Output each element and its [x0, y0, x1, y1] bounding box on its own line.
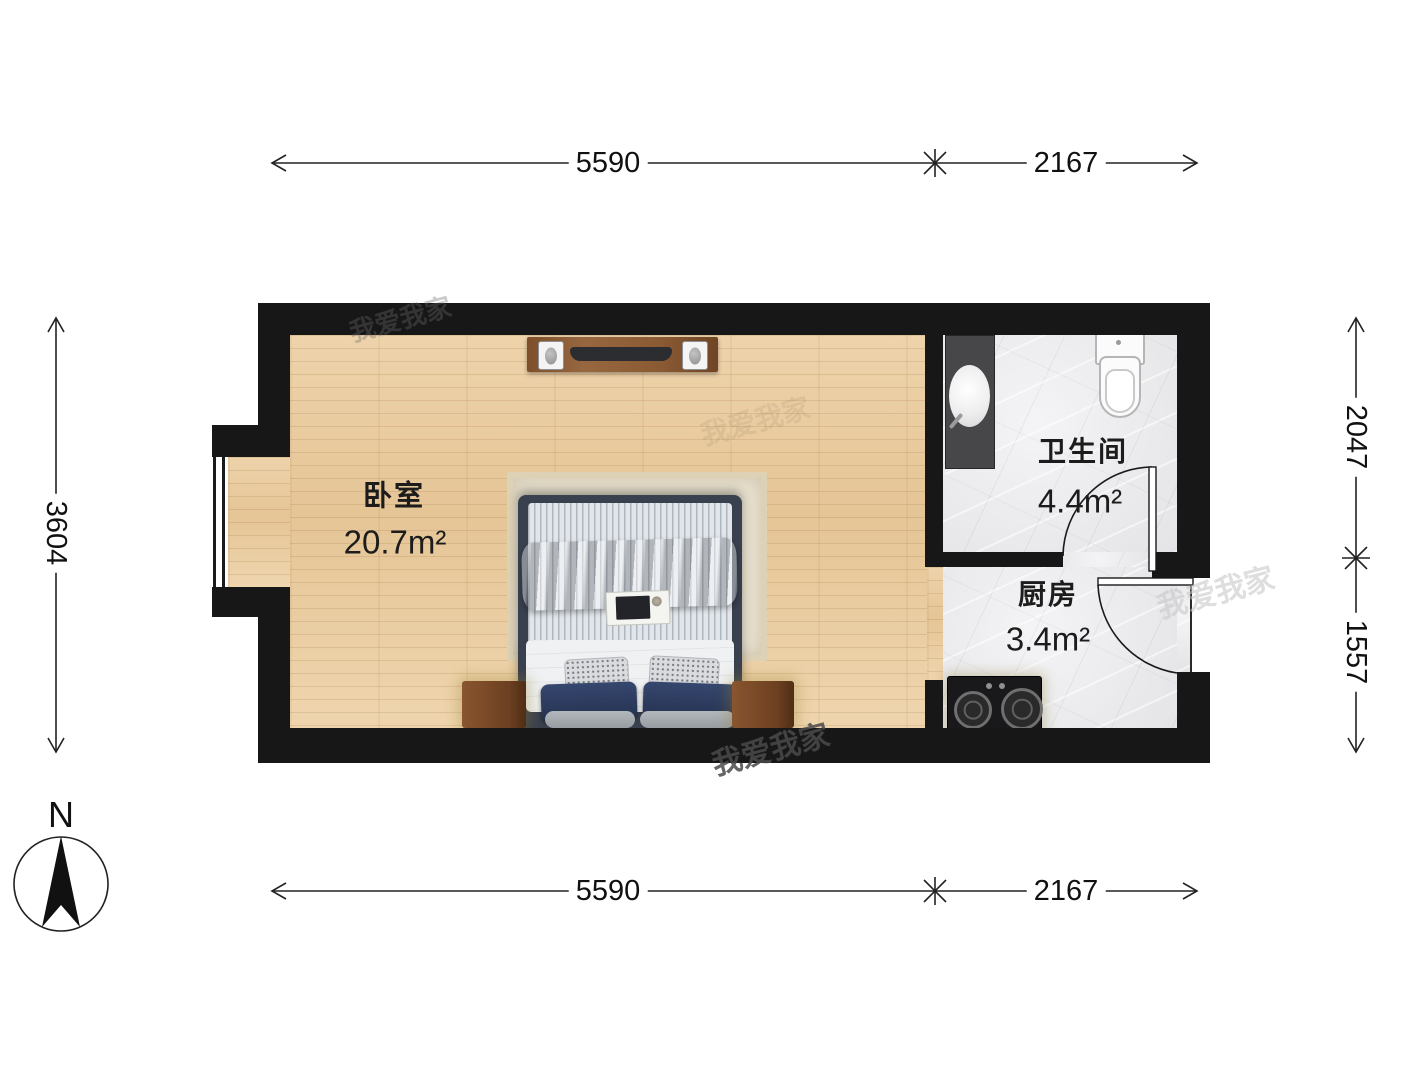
- bed: [518, 495, 742, 731]
- passage-floor: [927, 567, 943, 680]
- wall-top: [258, 303, 1210, 335]
- wall-right-lower: [1177, 672, 1210, 763]
- nightstand-left: [462, 681, 526, 728]
- window-glass-line-inner: [222, 457, 225, 587]
- vanity-cabinet: [945, 335, 995, 469]
- tv-console: [527, 337, 718, 372]
- dim-left-3604: 3604: [41, 494, 71, 573]
- cup-icon: [652, 596, 662, 606]
- stove: [947, 676, 1042, 733]
- window-glass-line-outer: [213, 457, 216, 587]
- wall-left-upper: [258, 303, 290, 425]
- wall-right-upper: [1177, 303, 1210, 578]
- dim-right-2047: 2047: [1341, 398, 1371, 477]
- bathroom-area: 4.4m²: [1038, 485, 1122, 518]
- speaker-left-icon: [538, 341, 564, 370]
- entry-door-threshold: [1177, 578, 1191, 672]
- burner-left-icon: [954, 691, 992, 729]
- bed-tray: [605, 590, 670, 626]
- dim-right-1557: 1557: [1341, 613, 1371, 692]
- magazine-icon: [616, 596, 651, 620]
- toilet-flush-button: [1116, 340, 1121, 345]
- tv-icon: [570, 347, 672, 361]
- bay-window: [212, 457, 228, 587]
- dim-top-2167: 2167: [1027, 148, 1106, 178]
- wall-bedroom-kitchen-stub: [925, 680, 943, 728]
- compass-icon: [14, 836, 108, 931]
- toilet: [1093, 329, 1143, 419]
- pillow-foot-left: [545, 711, 635, 728]
- floorplan-page: { "compass": { "label": "N" }, "rooms": …: [0, 0, 1420, 1065]
- kitchen-area: 3.4m²: [1006, 623, 1090, 656]
- dim-bottom-2167: 2167: [1027, 876, 1106, 906]
- speaker-right-icon: [682, 341, 708, 370]
- bathroom-door-threshold: [1063, 552, 1152, 567]
- compass-north-label: N: [48, 794, 74, 836]
- wall-bathroom-bottom-right: [1152, 552, 1177, 578]
- bedroom-area: 20.7m²: [344, 526, 447, 559]
- wall-bathroom-bottom-left: [943, 552, 1063, 567]
- bay-window-flange-bottom: [212, 587, 290, 617]
- kitchen-label: 厨房: [1018, 581, 1078, 609]
- bathroom-label: 卫生间: [1038, 438, 1128, 466]
- wall-bottom: [258, 728, 1210, 763]
- dim-top-5590: 5590: [569, 148, 648, 178]
- toilet-seat: [1105, 369, 1135, 413]
- bedroom-label: 卧室: [363, 483, 425, 512]
- dim-bottom-5590: 5590: [569, 876, 648, 906]
- stove-knob-left: [986, 683, 992, 689]
- bay-window-floor: [228, 457, 290, 587]
- wall-bedroom-bathroom: [925, 335, 943, 567]
- nightstand-right: [732, 681, 794, 728]
- burner-right-icon: [1001, 688, 1043, 730]
- stove-knob-right: [999, 683, 1005, 689]
- pillow-foot-right: [640, 711, 735, 728]
- bay-window-flange-top: [212, 425, 290, 457]
